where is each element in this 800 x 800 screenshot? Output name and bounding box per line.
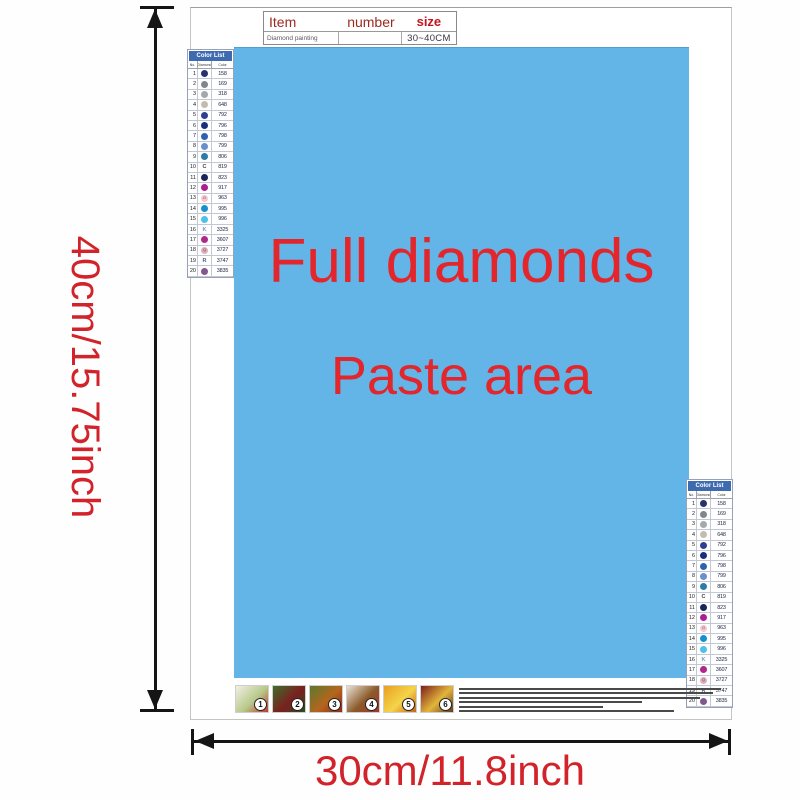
color-list-right: Color List No. Diamond Color 11582169331…	[686, 479, 733, 708]
diamond-color-dot-icon	[201, 101, 208, 108]
h-arrow-right-cap	[728, 729, 731, 755]
col-no: No.	[188, 63, 197, 67]
paste-area: Full diamonds Paste area	[234, 47, 689, 678]
color-row-number: 18	[687, 677, 696, 683]
color-list-row: 7798	[687, 561, 732, 571]
diamond-symbol-cell	[696, 582, 711, 591]
color-row-number: 14	[687, 636, 696, 642]
color-list-row: 203835	[188, 266, 233, 276]
diamond-color-dot-icon	[700, 666, 707, 673]
width-dimension-label: 30cm/11.8inch	[250, 747, 650, 795]
diamond-color-dot-icon	[700, 573, 707, 580]
diamond-symbol-cell	[696, 665, 711, 674]
diamond-symbol-cell	[197, 214, 212, 223]
diamond-symbol-cell	[197, 142, 212, 151]
diamond-color-dot-icon	[201, 133, 208, 140]
color-list-row: 14995	[188, 204, 233, 214]
diamond-symbol-cell: C	[197, 163, 212, 172]
diamond-symbol-cell	[197, 235, 212, 244]
dmc-color-code: 648	[711, 532, 732, 538]
color-row-number: 20	[188, 268, 197, 274]
dmc-color-code: 3607	[711, 667, 732, 673]
diamond-symbol-cell	[696, 509, 711, 518]
diamond-color-dot-icon	[700, 583, 707, 590]
diamond-symbol-cell	[696, 520, 711, 529]
color-row-number: 19	[188, 258, 197, 264]
color-row-number: 8	[188, 143, 197, 149]
size-header: size	[402, 14, 456, 29]
color-row-number: 9	[687, 584, 696, 590]
color-list-row: 1158	[687, 499, 732, 509]
item-table-header-row: Item number size	[264, 12, 456, 32]
dmc-color-code: 3835	[212, 268, 233, 274]
color-list-row: 11823	[188, 173, 233, 183]
instruction-line	[459, 706, 603, 708]
v-arrow-down-head-icon	[147, 690, 163, 709]
dmc-color-code: 648	[212, 102, 233, 108]
diamond-symbol-cell: Q	[197, 246, 212, 255]
col-color: Color	[212, 63, 233, 67]
step-number-badge: 2	[291, 698, 304, 711]
dmc-color-code: 169	[711, 511, 732, 517]
instruction-line	[459, 688, 721, 690]
col-diamond: Diamond	[696, 491, 711, 498]
diamond-symbol-letter: C	[203, 164, 207, 170]
color-list-column-headers: No. Diamond Color	[687, 491, 732, 499]
diamond-color-dot-icon	[700, 531, 707, 538]
dmc-color-code: 996	[711, 646, 732, 652]
h-arrow-left-head-icon	[195, 733, 214, 749]
dmc-color-code: 3747	[212, 258, 233, 264]
canvas-sheet: Item number size Diamond painting 30~40C…	[190, 7, 732, 720]
color-list-row: 14995	[687, 634, 732, 644]
step-photo-thumbnail: 1	[235, 685, 269, 713]
diamond-symbol-cell	[197, 100, 212, 109]
diamond-symbol-cell: K	[197, 225, 212, 234]
instruction-line	[459, 710, 674, 712]
step-number-badge: 3	[328, 698, 341, 711]
color-list-row: 12917	[188, 183, 233, 193]
color-row-number: 6	[687, 553, 696, 559]
step-photo-thumbnail: 6	[420, 685, 454, 713]
diamond-color-dot-icon	[201, 153, 208, 160]
step-number-badge: 5	[402, 698, 415, 711]
color-list-row: 16K3325	[188, 225, 233, 235]
color-row-number: 3	[687, 521, 696, 527]
color-list-row: 15996	[687, 644, 732, 654]
color-list-row: 10C819	[188, 163, 233, 173]
dmc-color-code: 917	[212, 185, 233, 191]
color-list-row: 6796	[188, 121, 233, 131]
color-row-number: 11	[687, 605, 696, 611]
diamond-symbol-cell	[696, 603, 711, 612]
color-list-row: 8799	[188, 142, 233, 152]
diamond-symbol-letter: K	[203, 227, 207, 233]
color-row-number: 12	[188, 185, 197, 191]
dmc-color-code: 792	[711, 542, 732, 548]
diamond-color-dot-icon: Q	[201, 247, 208, 254]
diamond-color-dot-icon	[700, 563, 707, 570]
diamond-symbol-cell	[696, 634, 711, 643]
product-size-diagram: Item number size Diamond painting 30~40C…	[0, 0, 800, 800]
dmc-color-code: 792	[212, 112, 233, 118]
v-arrow-bottom-cap	[140, 709, 174, 712]
diamond-symbol-cell: K	[696, 655, 711, 664]
dmc-color-code: 3325	[711, 657, 732, 663]
diamond-symbol-cell: G	[696, 624, 711, 633]
color-list-row: 7798	[188, 131, 233, 141]
color-row-number: 12	[687, 615, 696, 621]
step-photo-thumbnail: 5	[383, 685, 417, 713]
diamond-color-dot-icon	[201, 112, 208, 119]
diamond-symbol-cell	[696, 572, 711, 581]
diamond-color-dot-icon	[700, 635, 707, 642]
dmc-color-code: 806	[711, 584, 732, 590]
dmc-color-code: 169	[212, 81, 233, 87]
color-list-row: 3318	[687, 520, 732, 530]
diamond-color-dot-icon	[201, 268, 208, 275]
dmc-color-code: 799	[711, 573, 732, 579]
color-list-row: 5792	[188, 111, 233, 121]
color-list-row: 18Q3727	[687, 676, 732, 686]
color-list-row: 173607	[687, 665, 732, 675]
color-row-number: 15	[687, 646, 696, 652]
dmc-color-code: 819	[711, 594, 732, 600]
step-thumbnails: 123456	[235, 685, 454, 713]
color-list-rows: 11582169331846485792679677988799980610C8…	[188, 69, 233, 277]
diamond-symbol-cell	[197, 173, 212, 182]
col-color: Color	[711, 493, 732, 497]
color-row-number: 8	[687, 573, 696, 579]
color-list-row: 16K3325	[687, 655, 732, 665]
number-header: number	[340, 14, 402, 30]
diamond-color-dot-icon	[201, 236, 208, 243]
color-list-row: 3318	[188, 90, 233, 100]
color-row-number: 13	[687, 625, 696, 631]
color-list-title: Color List	[688, 481, 731, 491]
diamond-color-dot-icon	[700, 521, 707, 528]
color-row-number: 1	[188, 71, 197, 77]
dmc-color-code: 819	[212, 164, 233, 170]
color-list-row: 13G963	[188, 194, 233, 204]
color-row-number: 18	[188, 247, 197, 253]
diamond-symbol-cell	[696, 644, 711, 653]
diamond-color-dot-icon: G	[700, 625, 707, 632]
dmc-color-code: 917	[711, 615, 732, 621]
dmc-color-code: 995	[711, 636, 732, 642]
diamond-symbol-cell	[197, 131, 212, 140]
diamond-symbol-letter: K	[702, 657, 706, 663]
diamond-color-dot-icon	[201, 91, 208, 98]
color-row-number: 5	[188, 112, 197, 118]
diamond-symbol-cell: G	[197, 194, 212, 203]
dmc-color-code: 3607	[212, 237, 233, 243]
diamond-color-dot-icon	[700, 646, 707, 653]
diamond-symbol-cell	[696, 551, 711, 560]
color-row-number: 15	[188, 216, 197, 222]
diamond-symbol-cell	[696, 530, 711, 539]
step-photo-thumbnail: 3	[309, 685, 343, 713]
step-number-badge: 6	[439, 698, 452, 711]
instruction-line	[459, 692, 713, 694]
color-list-row: 1158	[188, 69, 233, 79]
color-row-number: 4	[188, 102, 197, 108]
color-list-row: 12917	[687, 613, 732, 623]
color-row-number: 5	[687, 542, 696, 548]
diamond-symbol-cell: C	[696, 593, 711, 602]
diamond-symbol-cell	[197, 69, 212, 78]
diamond-symbol-letter: C	[702, 594, 706, 600]
diamond-color-dot-icon	[700, 604, 707, 611]
item-value: Diamond painting	[264, 32, 338, 44]
color-row-number: 4	[687, 532, 696, 538]
paste-area-title-line1: Full diamonds	[269, 226, 655, 297]
dmc-color-code: 995	[212, 206, 233, 212]
color-list-row: 18Q3727	[188, 246, 233, 256]
height-dimension-label: 40cm/15.75inch	[62, 202, 108, 552]
diamond-symbol-cell	[197, 111, 212, 120]
instruction-text-block	[459, 688, 721, 715]
color-row-number: 1	[687, 501, 696, 507]
color-list-row: 11823	[687, 603, 732, 613]
diamond-symbol-cell	[197, 204, 212, 213]
diamond-symbol-cell	[197, 266, 212, 275]
diamond-symbol-cell	[197, 79, 212, 88]
dmc-color-code: 798	[212, 133, 233, 139]
h-arrow-shaft	[193, 740, 730, 743]
diamond-color-dot-icon	[201, 81, 208, 88]
color-row-number: 11	[188, 175, 197, 181]
step-photo-thumbnail: 4	[346, 685, 380, 713]
diamond-symbol-cell	[696, 613, 711, 622]
dmc-color-code: 3325	[212, 227, 233, 233]
dmc-color-code: 806	[212, 154, 233, 160]
diamond-symbol-cell	[696, 541, 711, 550]
color-list-rows: 11582169331846485792679677988799980610C8…	[687, 499, 732, 707]
dmc-color-code: 796	[711, 553, 732, 559]
color-list-row: 9806	[188, 152, 233, 162]
dmc-color-code: 158	[212, 71, 233, 77]
h-arrow-right-head-icon	[709, 733, 728, 749]
color-row-number: 3	[188, 91, 197, 97]
step-photo-thumbnail: 2	[272, 685, 306, 713]
item-header: Item	[264, 14, 340, 30]
dmc-color-code: 796	[212, 123, 233, 129]
dmc-color-code: 3727	[212, 247, 233, 253]
dmc-color-code: 158	[711, 501, 732, 507]
diamond-color-dot-icon	[700, 511, 707, 518]
diamond-symbol-letter: R	[203, 258, 207, 264]
diamond-color-dot-icon	[201, 143, 208, 150]
color-row-number: 16	[687, 657, 696, 663]
color-list-row: 9806	[687, 582, 732, 592]
diamond-color-dot-icon: G	[201, 195, 208, 202]
diamond-symbol-cell: R	[197, 256, 212, 265]
number-value	[338, 32, 401, 44]
dmc-color-code: 823	[212, 175, 233, 181]
color-row-number: 2	[687, 511, 696, 517]
color-list-row: 2169	[687, 509, 732, 519]
color-list-row: 5792	[687, 541, 732, 551]
dmc-color-code: 963	[711, 625, 732, 631]
color-list-column-headers: No. Diamond Color	[188, 61, 233, 69]
instruction-line	[459, 701, 642, 703]
size-value: 30~40CM	[401, 32, 456, 44]
color-row-number: 14	[188, 206, 197, 212]
dmc-color-code: 823	[711, 605, 732, 611]
diamond-symbol-cell: Q	[696, 676, 711, 685]
color-row-number: 17	[188, 237, 197, 243]
diamond-color-dot-icon	[700, 500, 707, 507]
diamond-color-dot-icon	[201, 184, 208, 191]
diamond-symbol-cell	[197, 121, 212, 130]
dmc-color-code: 799	[212, 143, 233, 149]
paste-area-title-line2: Paste area	[331, 345, 592, 407]
color-list-row: 4648	[687, 530, 732, 540]
color-list-row: 6796	[687, 551, 732, 561]
diamond-color-dot-icon	[201, 205, 208, 212]
diamond-color-dot-icon	[201, 174, 208, 181]
diamond-symbol-cell	[197, 90, 212, 99]
color-row-number: 13	[188, 195, 197, 201]
dmc-color-code: 318	[711, 521, 732, 527]
item-table-data-row: Diamond painting 30~40CM	[264, 32, 456, 44]
color-list-row: 19R3747	[188, 256, 233, 266]
diamond-symbol-cell	[197, 152, 212, 161]
step-number-badge: 4	[365, 698, 378, 711]
color-list-row: 4648	[188, 100, 233, 110]
color-list-row: 173607	[188, 235, 233, 245]
color-list-row: 2169	[188, 79, 233, 89]
color-list-row: 13G963	[687, 624, 732, 634]
color-row-number: 7	[687, 563, 696, 569]
v-arrow-up-head-icon	[147, 9, 163, 28]
col-diamond: Diamond	[197, 61, 212, 68]
color-row-number: 2	[188, 81, 197, 87]
dmc-color-code: 3727	[711, 677, 732, 683]
color-row-number: 6	[188, 123, 197, 129]
color-list-row: 15996	[188, 214, 233, 224]
color-list-title: Color List	[189, 51, 232, 61]
diamond-color-dot-icon	[700, 542, 707, 549]
instruction-line	[459, 697, 700, 699]
dmc-color-code: 996	[212, 216, 233, 222]
color-list-row: 10C819	[687, 593, 732, 603]
col-no: No.	[687, 493, 696, 497]
color-list-left: Color List No. Diamond Color 11582169331…	[187, 49, 234, 278]
dmc-color-code: 798	[711, 563, 732, 569]
diamond-color-dot-icon	[201, 122, 208, 129]
color-row-number: 10	[188, 164, 197, 170]
dmc-color-code: 963	[212, 195, 233, 201]
dmc-color-code: 318	[212, 91, 233, 97]
color-row-number: 16	[188, 227, 197, 233]
diamond-color-dot-icon	[201, 216, 208, 223]
color-row-number: 9	[188, 154, 197, 160]
diamond-symbol-cell	[197, 183, 212, 192]
diamond-color-dot-icon	[700, 552, 707, 559]
diamond-symbol-cell	[696, 499, 711, 508]
diamond-color-dot-icon	[700, 614, 707, 621]
step-number-badge: 1	[254, 698, 267, 711]
color-list-row: 8799	[687, 572, 732, 582]
color-row-number: 17	[687, 667, 696, 673]
v-arrow-shaft	[154, 8, 157, 710]
diamond-color-dot-icon	[201, 70, 208, 77]
color-row-number: 10	[687, 594, 696, 600]
diamond-symbol-cell	[696, 561, 711, 570]
item-info-table: Item number size Diamond painting 30~40C…	[263, 11, 457, 45]
color-row-number: 7	[188, 133, 197, 139]
diamond-color-dot-icon: Q	[700, 677, 707, 684]
